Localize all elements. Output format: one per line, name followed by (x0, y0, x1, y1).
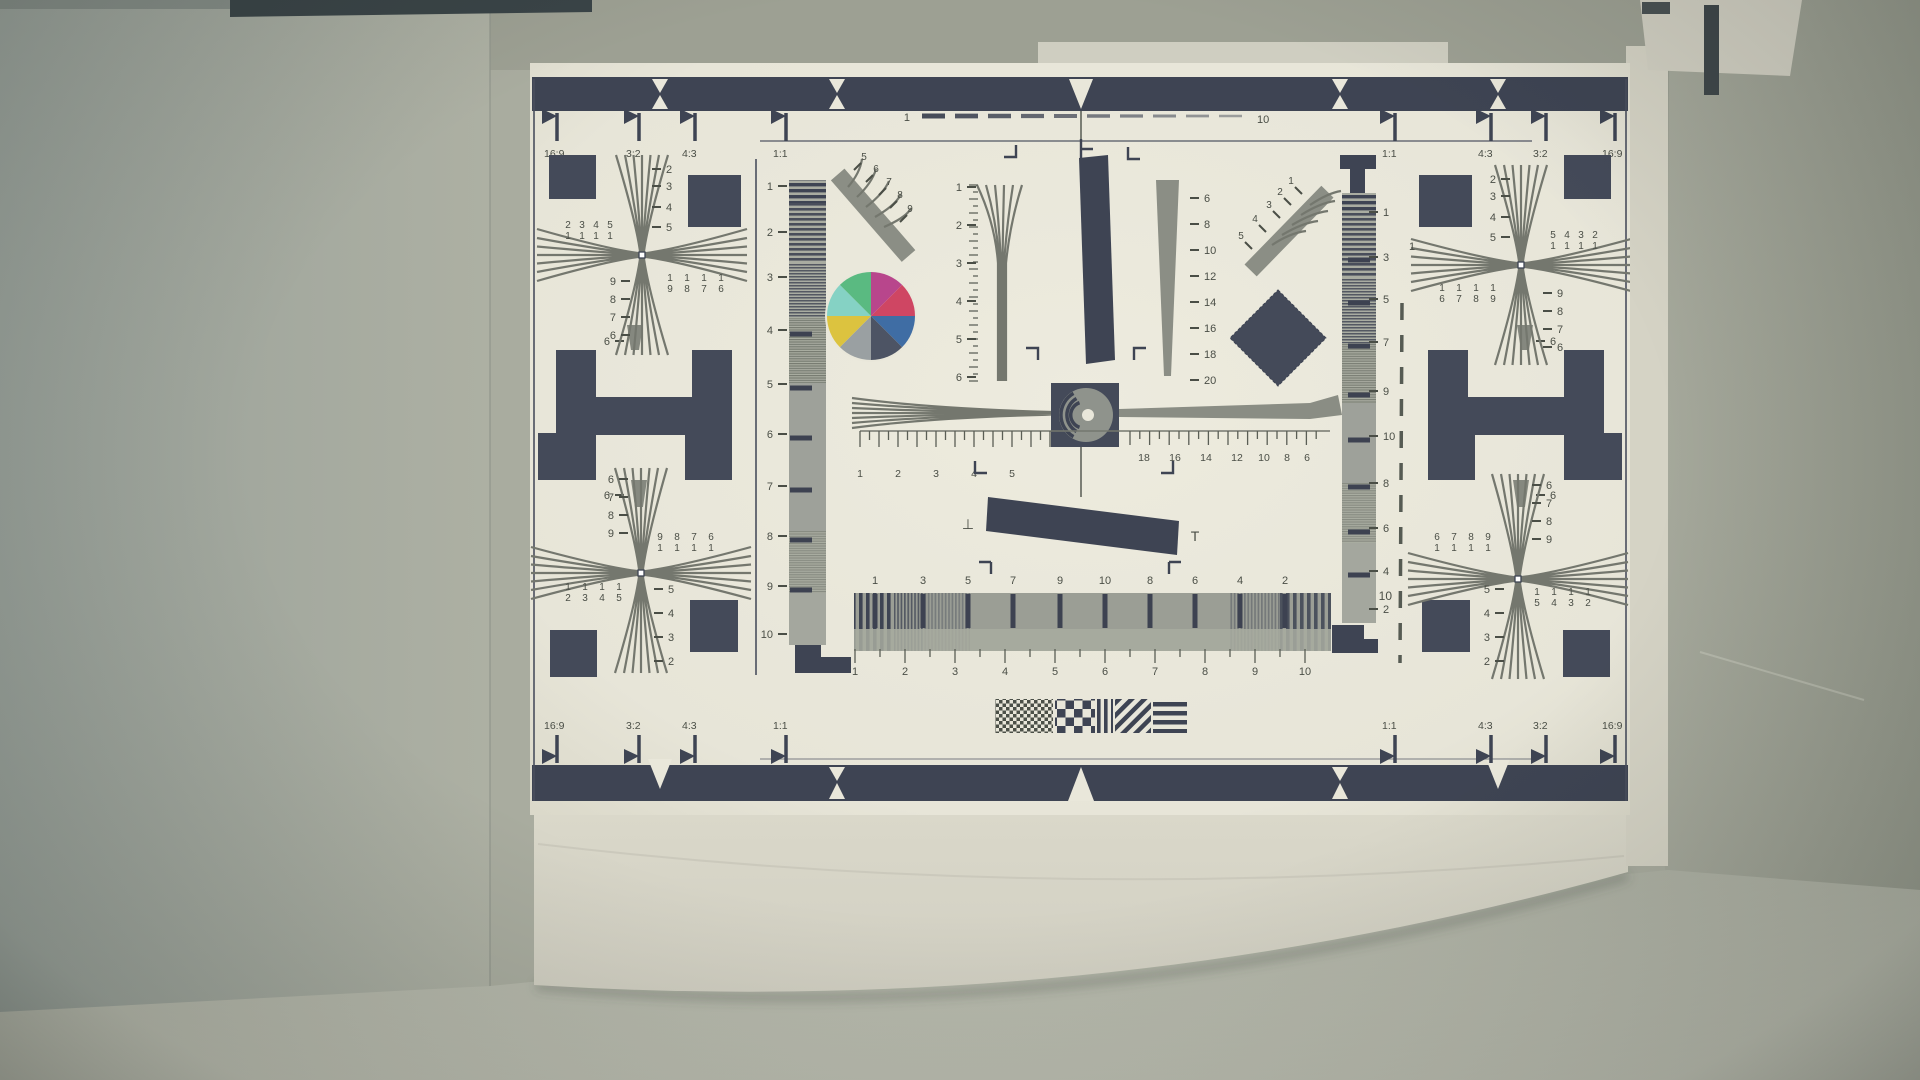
svg-text:6: 6 (610, 330, 616, 342)
svg-text:2: 2 (1277, 187, 1283, 198)
svg-text:5: 5 (1052, 666, 1058, 678)
top-band (532, 77, 1628, 111)
svg-text:1: 1 (1490, 283, 1496, 294)
svg-text:8: 8 (608, 510, 614, 522)
svg-text:9: 9 (1546, 534, 1552, 546)
svg-text:4: 4 (1237, 575, 1243, 587)
svg-text:12: 12 (1204, 271, 1216, 283)
svg-text:1: 1 (691, 543, 697, 554)
svg-text:2: 2 (1592, 230, 1598, 241)
svg-text:4: 4 (1551, 598, 1557, 609)
svg-text:1: 1 (1568, 587, 1574, 598)
svg-text:3: 3 (767, 272, 773, 284)
svg-text:3: 3 (1266, 200, 1272, 211)
svg-text:7: 7 (1456, 294, 1462, 305)
svg-text:7: 7 (1010, 575, 1016, 587)
svg-text:5: 5 (616, 593, 622, 604)
svg-text:1: 1 (579, 231, 585, 242)
svg-text:16: 16 (1169, 452, 1181, 464)
svg-text:1: 1 (1578, 241, 1584, 252)
svg-text:1: 1 (1434, 543, 1440, 554)
svg-text:12: 12 (1231, 452, 1243, 464)
svg-text:4: 4 (1484, 608, 1490, 620)
svg-text:3: 3 (1484, 632, 1490, 644)
svg-text:10: 10 (1383, 431, 1395, 443)
svg-text:8: 8 (897, 190, 903, 201)
svg-text:8: 8 (1473, 294, 1479, 305)
svg-text:2: 2 (1282, 575, 1288, 587)
svg-text:9: 9 (907, 204, 913, 215)
svg-text:1: 1 (616, 582, 622, 593)
svg-text:10: 10 (1258, 452, 1270, 464)
svg-text:1: 1 (607, 231, 613, 242)
svg-text:2: 2 (668, 656, 674, 668)
svg-text:10: 10 (1257, 114, 1269, 126)
svg-text:9: 9 (608, 528, 614, 540)
svg-text:7: 7 (691, 532, 697, 543)
svg-text:6: 6 (708, 532, 714, 543)
svg-text:4: 4 (1252, 214, 1258, 225)
svg-text:1: 1 (872, 575, 878, 587)
svg-text:1: 1 (565, 582, 571, 593)
left-wall (0, 0, 490, 1014)
perp-mark-left: ⊥ (962, 516, 974, 532)
svg-text:9: 9 (1557, 288, 1563, 300)
svg-text:4: 4 (767, 325, 773, 337)
svg-text:1: 1 (956, 182, 962, 194)
svg-text:20: 20 (1204, 375, 1216, 387)
diagonal-stripes-block (1115, 699, 1151, 733)
svg-text:8: 8 (767, 531, 773, 543)
svg-text:9: 9 (767, 581, 773, 593)
svg-text:6: 6 (1546, 480, 1552, 492)
svg-text:3: 3 (579, 220, 585, 231)
svg-text:6: 6 (608, 474, 614, 486)
svg-text:8: 8 (1546, 516, 1552, 528)
svg-text:3:2: 3:2 (626, 720, 641, 732)
svg-text:2: 2 (895, 468, 901, 480)
svg-text:1: 1 (582, 582, 588, 593)
svg-text:1: 1 (904, 112, 910, 124)
coarse-checker-block (1055, 699, 1095, 733)
svg-text:3:2: 3:2 (1533, 720, 1548, 732)
vertical-bars-block (1097, 699, 1113, 733)
svg-text:4: 4 (668, 608, 674, 620)
svg-text:7: 7 (701, 284, 707, 295)
svg-text:7: 7 (1152, 666, 1158, 678)
svg-text:9: 9 (610, 276, 616, 288)
svg-text:3: 3 (1490, 191, 1496, 203)
svg-text:2: 2 (1383, 604, 1389, 616)
svg-text:1:1: 1:1 (1382, 148, 1397, 160)
svg-text:4: 4 (666, 202, 672, 214)
svg-text:6: 6 (1102, 666, 1108, 678)
top-left-faint-strip (0, 0, 230, 9)
svg-text:6: 6 (873, 164, 879, 175)
board-top-highlight (1038, 42, 1448, 63)
svg-text:10: 10 (1204, 245, 1216, 257)
svg-text:1: 1 (657, 543, 663, 554)
svg-text:3: 3 (668, 632, 674, 644)
svg-text:7: 7 (1557, 324, 1563, 336)
board-side-edge (1626, 46, 1668, 866)
bottom-band (532, 759, 1628, 801)
svg-text:1:1: 1:1 (773, 148, 788, 160)
svg-text:1: 1 (1473, 283, 1479, 294)
svg-text:3: 3 (1568, 598, 1574, 609)
svg-text:6: 6 (1439, 294, 1445, 305)
svg-text:6: 6 (767, 429, 773, 441)
svg-text:2: 2 (666, 164, 672, 176)
test-box-scene: 16:93:24:31:1 1:14:33:216:9 16:93:24:31:… (0, 0, 1920, 1080)
svg-text:5: 5 (1383, 294, 1389, 306)
svg-text:9: 9 (1383, 386, 1389, 398)
svg-text:1: 1 (701, 273, 707, 284)
svg-text:14: 14 (1200, 452, 1212, 464)
svg-text:3:2: 3:2 (1533, 148, 1548, 160)
svg-text:6: 6 (956, 372, 962, 384)
svg-text:8: 8 (674, 532, 680, 543)
svg-text:1: 1 (565, 231, 571, 242)
svg-text:3: 3 (666, 181, 672, 193)
svg-text:1: 1 (1551, 587, 1557, 598)
svg-text:5: 5 (1490, 232, 1496, 244)
svg-text:9: 9 (1485, 532, 1491, 543)
svg-text:1: 1 (1439, 283, 1445, 294)
svg-text:6: 6 (1383, 523, 1389, 535)
svg-text:8: 8 (1147, 575, 1153, 587)
svg-text:1: 1 (1409, 241, 1415, 253)
svg-text:2: 2 (1490, 174, 1496, 186)
svg-text:7: 7 (1451, 532, 1457, 543)
svg-text:4: 4 (593, 220, 599, 231)
svg-text:3: 3 (956, 258, 962, 270)
svg-text:1: 1 (1451, 543, 1457, 554)
svg-text:7: 7 (1383, 337, 1389, 349)
svg-text:5: 5 (861, 152, 867, 163)
svg-text:1: 1 (767, 181, 773, 193)
svg-text:1: 1 (857, 468, 863, 480)
svg-text:6: 6 (1434, 532, 1440, 543)
svg-text:4: 4 (1564, 230, 1570, 241)
svg-text:4:3: 4:3 (1478, 148, 1493, 160)
svg-text:1: 1 (1585, 587, 1591, 598)
svg-text:10: 10 (761, 629, 773, 641)
svg-text:4:3: 4:3 (682, 720, 697, 732)
svg-text:9: 9 (1252, 666, 1258, 678)
svg-text:8: 8 (1204, 219, 1210, 231)
svg-text:18: 18 (1204, 349, 1216, 361)
svg-text:7: 7 (610, 312, 616, 324)
svg-text:10: 10 (1299, 666, 1311, 678)
svg-text:18: 18 (1138, 452, 1150, 464)
svg-text:5: 5 (956, 334, 962, 346)
svg-text:8: 8 (1468, 532, 1474, 543)
svg-text:4: 4 (1002, 666, 1008, 678)
color-wheel (825, 270, 917, 362)
svg-text:6: 6 (718, 284, 724, 295)
svg-text:10: 10 (1379, 589, 1393, 603)
fine-checker-block (995, 699, 1053, 733)
svg-text:6: 6 (1204, 193, 1210, 205)
svg-text:2: 2 (565, 593, 571, 604)
svg-text:9: 9 (667, 284, 673, 295)
svg-text:1: 1 (1288, 176, 1294, 187)
horizontal-bars-block (1153, 699, 1187, 733)
svg-text:1: 1 (1383, 207, 1389, 219)
svg-text:8: 8 (684, 284, 690, 295)
svg-text:1: 1 (599, 582, 605, 593)
svg-text:5: 5 (965, 575, 971, 587)
svg-text:4: 4 (1490, 212, 1496, 224)
svg-text:3: 3 (933, 468, 939, 480)
svg-text:1: 1 (684, 273, 690, 284)
svg-text:2: 2 (1484, 656, 1490, 668)
svg-text:2: 2 (767, 227, 773, 239)
svg-text:4: 4 (1383, 566, 1389, 578)
svg-text:1:1: 1:1 (1382, 720, 1397, 732)
svg-text:1: 1 (667, 273, 673, 284)
svg-text:16:9: 16:9 (1602, 720, 1623, 732)
svg-text:5: 5 (607, 220, 613, 231)
svg-text:2: 2 (1585, 598, 1591, 609)
svg-text:5: 5 (1009, 468, 1015, 480)
svg-text:6: 6 (1557, 342, 1563, 354)
svg-text:5: 5 (668, 584, 674, 596)
svg-text:1: 1 (1468, 543, 1474, 554)
svg-text:2: 2 (902, 666, 908, 678)
svg-text:9: 9 (657, 532, 663, 543)
svg-text:9: 9 (1490, 294, 1496, 305)
svg-text:5: 5 (1238, 231, 1244, 242)
svg-text:1: 1 (1456, 283, 1462, 294)
svg-text:1: 1 (1485, 543, 1491, 554)
svg-text:7: 7 (608, 492, 614, 504)
mount-clip-dark (1704, 5, 1719, 95)
svg-text:1: 1 (593, 231, 599, 242)
svg-text:3: 3 (1578, 230, 1584, 241)
svg-text:7: 7 (767, 481, 773, 493)
svg-text:5: 5 (1534, 598, 1540, 609)
svg-text:1: 1 (1550, 241, 1556, 252)
svg-text:1: 1 (718, 273, 724, 284)
svg-text:1: 1 (674, 543, 680, 554)
svg-text:1: 1 (852, 666, 858, 678)
svg-text:4: 4 (599, 593, 605, 604)
svg-text:1: 1 (1534, 587, 1540, 598)
svg-text:1:1: 1:1 (773, 720, 788, 732)
svg-text:5: 5 (767, 379, 773, 391)
svg-text:1: 1 (1592, 241, 1598, 252)
svg-text:8: 8 (1383, 478, 1389, 490)
svg-text:14: 14 (1204, 297, 1216, 309)
svg-text:16:9: 16:9 (544, 720, 565, 732)
svg-text:1: 1 (708, 543, 714, 554)
svg-text:8: 8 (1202, 666, 1208, 678)
svg-text:9: 9 (1057, 575, 1063, 587)
svg-text:2: 2 (565, 220, 571, 231)
svg-text:4: 4 (956, 296, 962, 308)
svg-text:8: 8 (1284, 452, 1290, 464)
svg-text:6: 6 (1192, 575, 1198, 587)
svg-text:5: 5 (1550, 230, 1556, 241)
svg-text:5: 5 (666, 222, 672, 234)
svg-text:6: 6 (1304, 452, 1310, 464)
svg-text:7: 7 (1546, 498, 1552, 510)
svg-text:1: 1 (1564, 241, 1570, 252)
svg-text:7: 7 (886, 177, 892, 188)
resolution-test-chart: 16:93:24:31:1 1:14:33:216:9 16:93:24:31:… (530, 63, 1630, 815)
mount-chip-dark (1642, 2, 1670, 14)
svg-text:4:3: 4:3 (682, 148, 697, 160)
svg-text:8: 8 (610, 294, 616, 306)
svg-text:3: 3 (920, 575, 926, 587)
svg-text:2: 2 (956, 220, 962, 232)
bottom-pattern-strip (995, 699, 1187, 733)
perp-mark-right: T (1191, 528, 1200, 544)
svg-text:10: 10 (1099, 575, 1111, 587)
svg-text:3: 3 (582, 593, 588, 604)
svg-text:4:3: 4:3 (1478, 720, 1493, 732)
svg-text:5: 5 (1484, 584, 1490, 596)
svg-text:3: 3 (952, 666, 958, 678)
svg-text:16: 16 (1204, 323, 1216, 335)
svg-text:3: 3 (1383, 252, 1389, 264)
svg-text:8: 8 (1557, 306, 1563, 318)
